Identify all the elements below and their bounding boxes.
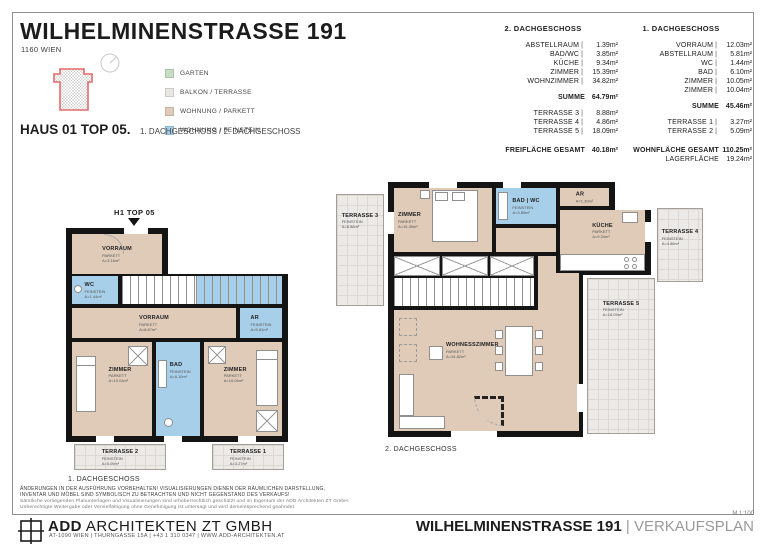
page-subtitle: 1160 WIEN	[21, 45, 62, 54]
area-row: VORRAUM|12.03m²	[610, 41, 752, 50]
room-label: ZIMMER	[610, 86, 713, 95]
room-vorraum: VORRAUM PARKETT A=8.87m²	[72, 308, 236, 338]
side-table-symbol	[429, 346, 443, 360]
separator: |	[715, 50, 717, 59]
legend-item-wohnung-parkett: WOHNUNG / PARKETT	[165, 102, 260, 121]
sink-symbol	[158, 360, 167, 388]
terrace-label: TERRASSE 5 FEINSTEIN A=18.09m²	[603, 301, 640, 318]
separator: |	[715, 127, 717, 136]
total-label: FREIFLÄCHE GESAMT	[468, 146, 585, 155]
separator: |	[581, 109, 583, 118]
room-label: BAD | WC FEINSTEIN A=3.85m²	[512, 198, 539, 215]
room-label: VORRAUM PARKETT A=8.87m²	[139, 315, 169, 332]
entrance-door-opening	[124, 228, 148, 234]
room-label: ZIMMER PARKETT A=15.39m²	[398, 212, 421, 229]
room-label: KÜCHE	[468, 59, 579, 68]
area-table-dg1: 1. DACHGESCHOSS VORRAUM|12.03m² ABSTELLR…	[610, 24, 752, 164]
shower-symbol	[498, 192, 508, 220]
sink-symbol	[622, 212, 638, 223]
terrace-label: TERRASSE 1	[610, 118, 713, 127]
verkaufsplan-sheet: { "header": { "title": "WILHELMINENSTRAS…	[0, 0, 770, 545]
stairs	[122, 276, 196, 304]
site-plan-icon	[46, 64, 100, 116]
wardrobe-symbol	[128, 346, 148, 366]
room-area: 10.04m²	[719, 86, 752, 95]
disclaimer-block: ÄNDERUNGEN IN DER AUSFÜHRUNG VORBEHALTEN…	[20, 486, 349, 511]
toilet-symbol	[164, 418, 173, 427]
room-label: ZIMMER	[468, 68, 579, 77]
area-row: ABSTELLRAUM|5.81m²	[610, 50, 752, 59]
room-label: ZIMMER PARKETT A=10.04m²	[109, 367, 132, 384]
terrace-label: TERRASSE 4	[468, 118, 579, 127]
lager-label: LAGERFLÄCHE	[610, 155, 719, 164]
haus-top-floors: 1. DACHGESCHOSS / 2. DACHGESCHOSS	[140, 127, 300, 136]
room-zimmer: ZIMMER PARKETT A=15.39m²	[394, 188, 492, 252]
pillow-symbol	[435, 192, 448, 201]
window-opening	[429, 182, 457, 188]
area-row: ZIMMER|10.05m²	[610, 77, 752, 86]
hall-strip	[538, 273, 579, 310]
sofa-symbol	[399, 374, 414, 416]
chair-symbol	[535, 346, 543, 355]
total-label: WOHNFLÄCHE GESAMT	[610, 146, 719, 155]
balkon-terrasse-swatch	[165, 88, 174, 97]
area-row: TERRASSE 1|3.27m²	[610, 118, 752, 127]
terrace-door-opening	[388, 212, 394, 234]
door-swing-arc	[474, 396, 504, 426]
stairs-upper	[196, 276, 282, 304]
terrace-label: TERRASSE 3	[468, 109, 579, 118]
separator: |	[581, 41, 583, 50]
terrace-door-opening	[577, 384, 583, 412]
area-row: KÜCHE|9.34m²	[468, 59, 618, 68]
terrace-label: TERRASSE 2 FEINSTEIN A=5.09m²	[102, 449, 139, 466]
separator: |	[581, 77, 583, 86]
separator: |	[715, 41, 717, 50]
scale-label: M 1:100	[732, 511, 754, 517]
hall-strip	[538, 256, 556, 273]
room-label: BAD	[610, 68, 713, 77]
project-name: WILHELMINENSTRASSE 191	[416, 518, 622, 535]
room-area: 5.81m²	[719, 50, 752, 59]
wardrobe-symbol	[256, 410, 278, 432]
area-row: TERRASSE 2|5.09m²	[610, 127, 752, 136]
room-label: ABSTELLRAUM	[610, 50, 713, 59]
room-bad: BAD FEINSTEIN A=6.10m²	[156, 342, 200, 436]
room-wohnesszimmer: WOHNESSZIMMER PARKETT A=34.82m²	[394, 310, 579, 431]
wardrobe-symbol	[394, 256, 440, 276]
separator: |	[581, 68, 583, 77]
terrace-door-opening	[238, 436, 256, 442]
separator: |	[581, 59, 583, 68]
legend-item-balkon-terrasse: BALKON / TERRASSE	[165, 83, 260, 102]
pillow-symbol	[256, 350, 278, 360]
legend-label: BALKON / TERRASSE	[180, 89, 252, 96]
firm-contact-line: AT-1090 WIEN | THURNGASSE 15A | +43 1 31…	[49, 533, 285, 539]
lager-value: 19.24m²	[719, 155, 752, 164]
terrace-door-opening	[645, 222, 651, 242]
armchair-symbol	[399, 344, 417, 362]
toilet-symbol	[74, 285, 82, 293]
area-row: BAD/WC|3.85m²	[468, 50, 618, 59]
pillow-symbol	[76, 356, 96, 366]
room-label: WOHNESSZIMMER PARKETT A=34.82m²	[446, 342, 499, 359]
legend-item-garten: GARTEN	[165, 64, 260, 83]
room-area: 12.03m²	[719, 41, 752, 50]
room-label: BAD FEINSTEIN A=6.10m²	[170, 362, 191, 379]
wardrobe-symbol	[490, 256, 534, 276]
haus-top-label: HAUS 01 TOP 05.	[20, 122, 131, 137]
summe-label: SUMME	[468, 93, 585, 102]
room-label: BAD/WC	[468, 50, 579, 59]
room-label: AR A=1.39m²	[576, 191, 593, 203]
room-label: ZIMMER	[610, 77, 713, 86]
terrasse-2: TERRASSE 2 FEINSTEIN A=5.09m²	[74, 444, 166, 470]
summe-row: SUMME45.46m²	[610, 102, 752, 111]
separator: |	[581, 127, 583, 136]
area-table-dg2: 2. DACHGESCHOSS ABSTELLRAUM|1.39m² BAD/W…	[468, 24, 618, 155]
separator: |	[715, 68, 717, 77]
room-label: ABSTELLRAUM	[468, 41, 579, 50]
room-bad-wc: BAD | WC FEINSTEIN A=3.85m²	[496, 188, 556, 224]
area-row: TERRASSE 3|8.88m²	[468, 109, 618, 118]
terrace-door-opening	[96, 436, 114, 442]
dining-table-symbol	[505, 326, 533, 376]
room-label: AR FEINSTEIN A=5.81m²	[251, 315, 272, 332]
area-row: WC|1.44m²	[610, 59, 752, 68]
chair-symbol	[495, 362, 503, 371]
room-label: KÜCHE PARKETT A=9.34m²	[592, 222, 613, 239]
stairs	[394, 278, 534, 306]
haus-top-line: HAUS 01 TOP 05. 1. DACHGESCHOSS / 2. DAC…	[20, 121, 301, 139]
garten-swatch	[165, 69, 174, 78]
terrasse-4: TERRASSE 4 FEINSTEIN A=4.86m²	[657, 208, 703, 282]
burner-symbol	[632, 257, 637, 262]
separator: |	[715, 118, 717, 127]
separator: |	[581, 118, 583, 127]
legend-label: WOHNUNG / PARKETT	[180, 108, 255, 115]
room-area: 6.10m²	[719, 68, 752, 77]
room-label: WOHNZIMMER	[468, 77, 579, 86]
room-wc: WC FEINSTEIN A=1.44m²	[72, 276, 118, 304]
separator: |	[715, 77, 717, 86]
total-row: WOHNFLÄCHE GESAMT110.25m²	[610, 146, 752, 155]
terrace-rows: TERRASSE 1|3.27m² TERRASSE 2|5.09m²	[610, 118, 752, 136]
unit-marker-label: H1 TOP 05	[114, 208, 155, 217]
wardrobe-symbol	[442, 256, 488, 276]
terrasse-3: TERRASSE 3 FEINSTEIN A=8.88m²	[336, 194, 384, 306]
terrace-label: TERRASSE 5	[468, 127, 579, 136]
burner-symbol	[632, 264, 637, 269]
chair-symbol	[495, 346, 503, 355]
separator: |	[581, 50, 583, 59]
room-kueche: KÜCHE PARKETT A=9.34m²	[560, 210, 645, 271]
summe-row: SUMME64.79m²	[468, 93, 618, 102]
terrace-label: TERRASSE 1 FEINSTEIN A=3.27m²	[230, 449, 267, 466]
plan-caption: 2. DACHGESCHOSS	[385, 446, 457, 453]
disclaimer-line: Sämtliche vorliegenden Planunterlagen un…	[20, 499, 349, 505]
summe-label: SUMME	[610, 102, 719, 111]
terrace-door-opening	[451, 431, 497, 438]
wohnung-parkett-swatch	[165, 107, 174, 116]
room-label: WC FEINSTEIN A=1.44m²	[85, 282, 106, 299]
terrace-door-opening	[164, 436, 182, 442]
separator: |	[715, 86, 717, 95]
room-label: ZIMMER PARKETT A=10.05m²	[224, 367, 247, 384]
add-architekten-logo-icon	[18, 518, 44, 544]
area-row: ZIMMER|15.39m²	[468, 68, 618, 77]
pillow-symbol	[452, 192, 465, 201]
north-compass-icon	[99, 52, 121, 74]
terrace-label: TERRASSE 2	[610, 127, 713, 136]
room-label: VORRAUM	[610, 41, 713, 50]
chair-symbol	[495, 330, 503, 339]
sofa-symbol	[399, 416, 445, 429]
terrasse-5: TERRASSE 5 FEINSTEIN A=18.09m²	[587, 278, 655, 434]
terrace-area: 5.09m²	[719, 127, 752, 136]
room-area: 1.44m²	[719, 59, 752, 68]
wardrobe-symbol	[208, 346, 226, 364]
separator: |	[626, 518, 630, 535]
summe-value: 45.46m²	[719, 102, 752, 111]
page-title: WILHELMINENSTRASSE 191	[20, 18, 347, 45]
room-zimmer-ost: ZIMMER PARKETT A=10.05m²	[204, 342, 282, 436]
burner-symbol	[624, 257, 629, 262]
nightstand-symbol	[420, 190, 430, 199]
room-ar: AR A=1.39m²	[560, 188, 609, 206]
lager-row: LAGERFLÄCHE19.24m²	[610, 155, 752, 164]
burner-symbol	[624, 264, 629, 269]
plan-caption: 1. DACHGESCHOSS	[68, 476, 140, 483]
hall-to-kitchen	[496, 228, 556, 252]
area-row: ZIMMER|10.04m²	[610, 86, 752, 95]
chair-symbol	[535, 330, 543, 339]
floorplan-dg1: H1 TOP 05 VORRAUM PARKETT A=3.16m² WC FE…	[66, 208, 294, 500]
separator: |	[715, 59, 717, 68]
legend-label: GARTEN	[180, 70, 209, 77]
area-row: TERRASSE 4|4.86m²	[468, 118, 618, 127]
room-area: 10.05m²	[719, 77, 752, 86]
room-label: WC	[610, 59, 713, 68]
area-row: TERRASSE 5|18.09m²	[468, 127, 618, 136]
total-row: FREIFLÄCHE GESAMT40.18m²	[468, 146, 618, 155]
area-row: ABSTELLRAUM|1.39m²	[468, 41, 618, 50]
terrace-label: TERRASSE 3 FEINSTEIN A=8.88m²	[342, 213, 379, 230]
area-table-title: 2. DACHGESCHOSS	[468, 24, 618, 33]
terrace-label: TERRASSE 4 FEINSTEIN A=4.86m²	[662, 229, 699, 246]
total-value: 110.25m²	[719, 146, 752, 155]
unit-marker-arrow-icon	[128, 218, 140, 226]
floorplan-dg2: TERRASSE 3 FEINSTEIN A=8.88m² ZIMMER PAR…	[333, 178, 708, 470]
chair-symbol	[535, 362, 543, 371]
document-type: VERKAUFSPLAN	[634, 518, 754, 535]
area-row: BAD|6.10m²	[610, 68, 752, 77]
disclaimer-line: Unberechtigte Weitergabe oder Vervielfäl…	[20, 505, 349, 511]
document-title: WILHELMINENSTRASSE 191 | VERKAUFSPLAN	[416, 518, 754, 535]
armchair-symbol	[399, 318, 417, 336]
area-row: WOHNZIMMER|34.82m²	[468, 77, 618, 86]
terrasse-1: TERRASSE 1 FEINSTEIN A=3.27m²	[212, 444, 284, 470]
window-opening	[503, 182, 521, 188]
area-table-title: 1. DACHGESCHOSS	[610, 24, 752, 33]
terrace-area: 3.27m²	[719, 118, 752, 127]
room-ar: AR FEINSTEIN A=5.81m²	[240, 308, 282, 338]
terrace-rows: TERRASSE 3|8.88m² TERRASSE 4|4.86m² TERR…	[468, 109, 618, 136]
